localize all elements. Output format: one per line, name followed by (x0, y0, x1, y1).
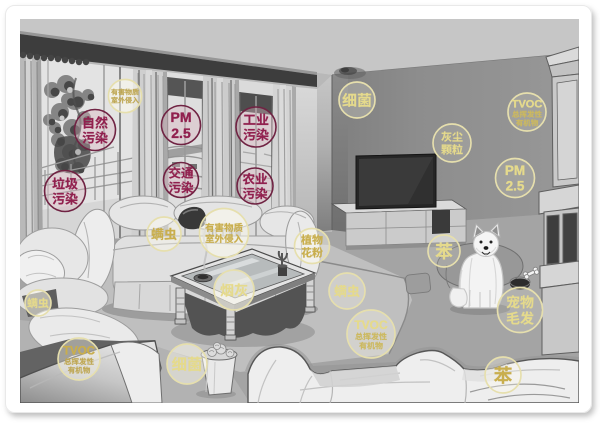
svg-text:TVOC: TVOC (63, 345, 95, 357)
svg-text:TVOC: TVOC (354, 318, 388, 332)
svg-text:PM: PM (505, 163, 525, 178)
svg-text:TVOC: TVOC (512, 98, 543, 110)
svg-text:2.5: 2.5 (506, 179, 525, 194)
svg-text:2.5: 2.5 (171, 125, 191, 141)
svg-text:PM: PM (171, 109, 192, 125)
